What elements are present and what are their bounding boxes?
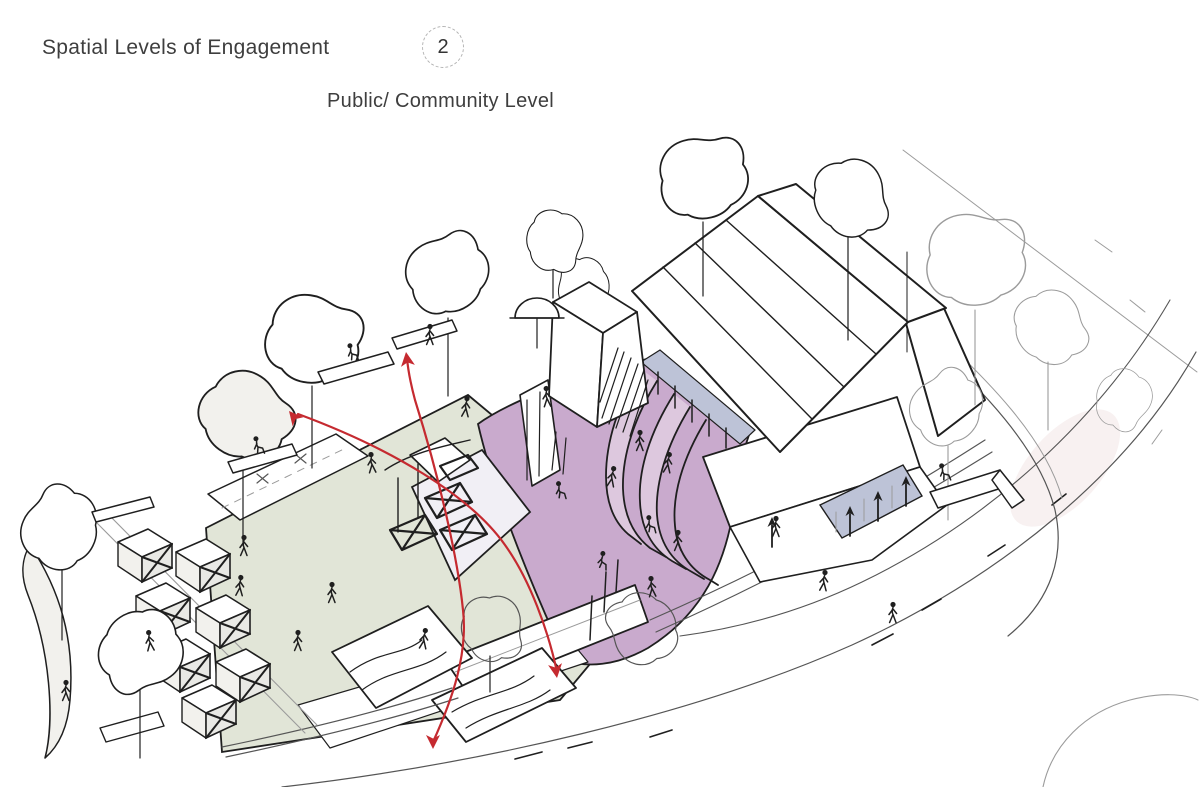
building-right-wall <box>905 306 985 436</box>
ground-washes <box>990 390 1140 545</box>
slide: Spatial Levels of Engagement 2 Public/ C… <box>0 0 1200 787</box>
site-sketch <box>0 0 1200 787</box>
